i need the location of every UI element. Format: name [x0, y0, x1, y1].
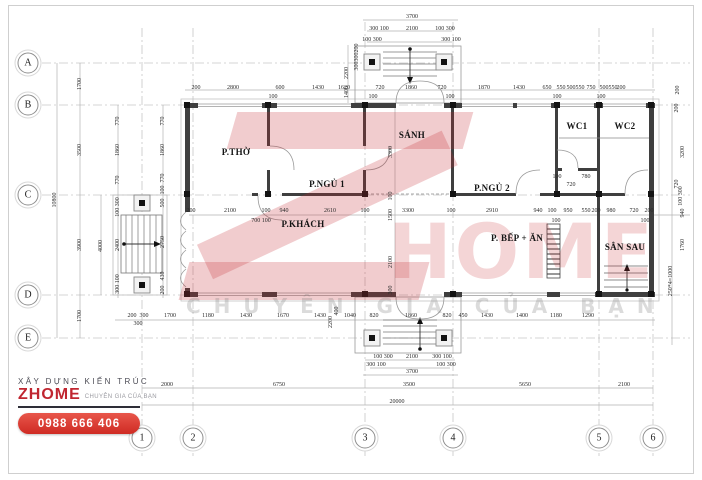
dim-label: 1180 — [202, 313, 214, 319]
room-label: SÁNH — [399, 130, 425, 140]
side-entrance-stair — [113, 195, 167, 295]
dim-label: 2200 — [328, 316, 334, 328]
room-label: WC1 — [567, 121, 588, 131]
dim-label: 100 — [641, 218, 650, 224]
dim-label: 200 — [354, 44, 360, 53]
dim-label: 100 — [262, 208, 271, 214]
dim-label: 950 — [564, 208, 573, 214]
room-label: P.NGỦ 1 — [309, 179, 345, 189]
dim-label: 200 — [192, 85, 201, 91]
dim-label: 1180 — [550, 313, 562, 319]
dim-label: 2400 — [115, 239, 121, 251]
dim-label: 300 100 — [115, 274, 121, 294]
dim-label: 200 — [617, 85, 626, 91]
dim-label: 1860 — [160, 144, 166, 156]
logo-slogan-top: XÂY DỰNG KIẾN TRÚC — [18, 377, 140, 386]
room-label: WC2 — [615, 121, 636, 131]
dim-label: 3700 — [406, 14, 418, 20]
dim-label: 2100 — [224, 208, 236, 214]
dim-label: 1400 — [516, 313, 528, 319]
dim-label: 100 — [369, 94, 378, 100]
backyard-steps — [604, 264, 648, 292]
grid-bubble-C: C — [18, 185, 39, 206]
dim-label: 100 — [361, 208, 370, 214]
grid-bubble-4: 4 — [443, 428, 464, 449]
dim-label: 770 — [115, 117, 121, 126]
room-label: P. BẾP + ĂN — [491, 233, 543, 243]
dim-label: 300 — [354, 62, 360, 71]
dim-label: 1430 — [312, 85, 324, 91]
internal-stair-hatch — [547, 224, 560, 278]
phone-button: 0988 666 406 — [18, 413, 140, 434]
floor-plan-page: HOME CHUYÊN GIA CỦA BẠN 1080017003500390… — [0, 0, 702, 480]
grid-bubble-6: 6 — [643, 428, 664, 449]
dim-label: 100 — [160, 186, 166, 195]
dim-label: 3300 — [388, 146, 394, 158]
grid-bubble-B: B — [18, 95, 39, 116]
grid-bubble-A: A — [18, 53, 39, 74]
dim-label: 2100 — [406, 354, 418, 360]
dim-label: 450 — [459, 313, 468, 319]
dim-label: 2800 — [227, 85, 239, 91]
dim-label: 1700 — [77, 310, 83, 322]
dim-label: 100 — [553, 94, 562, 100]
dim-label: 2910 — [486, 208, 498, 214]
dim-label: 720 — [376, 85, 385, 91]
dim-label: 650 — [543, 85, 552, 91]
dim-label: 720 — [438, 85, 447, 91]
dim-label: 770 — [160, 117, 166, 126]
grid-bubble-5: 5 — [589, 428, 610, 449]
dim-label: 550 — [557, 85, 566, 91]
dim-label: 1860 — [405, 85, 417, 91]
dim-label: 100 — [553, 174, 562, 180]
dim-label: 2200 — [344, 67, 350, 79]
dim-label: 100 — [388, 192, 394, 201]
dim-label: 5650 — [519, 382, 531, 388]
dim-label: 2610 — [324, 208, 336, 214]
dim-label: 750 — [587, 85, 596, 91]
grid-bubble-2: 2 — [183, 428, 204, 449]
dim-label: 200 — [675, 86, 681, 95]
dim-label: 3700 — [406, 369, 418, 375]
dim-label: 700 100 — [251, 218, 271, 224]
dim-label: 500 — [600, 85, 609, 91]
dim-label: 100 300 — [435, 26, 455, 32]
dim-label: 550 — [582, 208, 591, 214]
room-label: P.KHÁCH — [281, 219, 324, 229]
dim-label: 250*4=1000 — [668, 266, 674, 296]
dim-label: 300 — [140, 313, 149, 319]
dim-label: 300 100 — [441, 37, 461, 43]
dim-label: 1620 — [338, 85, 350, 91]
dim-label: 300 100 — [366, 362, 386, 368]
porch-bottom — [355, 297, 461, 353]
door-arcs — [181, 146, 649, 287]
dim-label: 20000 — [390, 399, 405, 405]
dim-label: 100 — [548, 208, 557, 214]
dim-label: 2000 — [161, 382, 173, 388]
dim-label: 100 — [446, 94, 455, 100]
dim-label: 300 — [354, 53, 360, 62]
dim-label: 200 — [674, 104, 680, 113]
room-label: P.THỜ — [222, 147, 250, 157]
dim-label: 940 — [680, 209, 686, 218]
dim-label: 2750 — [160, 236, 166, 248]
dim-label: 1670 — [277, 313, 289, 319]
dim-label: 200 — [128, 313, 137, 319]
logo-brand: ZHOME — [18, 387, 81, 403]
dim-label: 1430 — [240, 313, 252, 319]
dim-label: 100 — [597, 94, 606, 100]
dim-label: 400 — [334, 307, 340, 316]
dim-label: 1430 — [513, 85, 525, 91]
dim-label: 300 — [388, 286, 394, 295]
grid-bubble-D: D — [18, 285, 39, 306]
grid-bubble-E: E — [18, 328, 39, 349]
dim-label: 2100 — [388, 256, 394, 268]
dim-label: 100 300 — [373, 354, 393, 360]
dim-label: 100 300 — [436, 362, 456, 368]
dim-label: 200 — [187, 208, 196, 214]
dim-label: 200 — [160, 286, 166, 295]
dim-label: 1760 — [680, 239, 686, 251]
dim-label: 1040 — [344, 313, 356, 319]
dim-label: 1700 — [77, 78, 83, 90]
dim-label: 1860 — [405, 313, 417, 319]
dim-label: 780 — [582, 174, 591, 180]
dim-label: 550 — [576, 85, 585, 91]
dim-label: 820 — [443, 313, 452, 319]
dim-label: 200 — [592, 208, 601, 214]
grid-bubble-3: 3 — [355, 428, 376, 449]
room-label: SÂN SAU — [605, 242, 645, 252]
logo-divider — [18, 406, 140, 408]
dim-label: 3500 — [403, 382, 415, 388]
dim-label: 300 100 — [369, 26, 389, 32]
dim-label: 500 — [160, 199, 166, 208]
dim-label: 720 — [567, 182, 576, 188]
dim-label: 300 — [134, 321, 143, 327]
dim-label: 2100 — [618, 382, 630, 388]
dim-label: 200 — [645, 208, 654, 214]
dim-label: 600 — [276, 85, 285, 91]
dim-label: 980 — [607, 208, 616, 214]
dim-label: 2100 — [406, 26, 418, 32]
dim-label: 940 — [534, 208, 543, 214]
dim-label: 500 — [567, 85, 576, 91]
dim-label: 770 — [115, 176, 121, 185]
dim-label: 100 — [447, 208, 456, 214]
dim-label: 3200 — [680, 146, 686, 158]
dim-label: 940 — [280, 208, 289, 214]
dim-label: 100 300 — [362, 37, 382, 43]
phone-number: 0988 666 406 — [38, 418, 120, 430]
dim-label: 1290 — [582, 313, 594, 319]
dim-label: 300 100 — [432, 354, 452, 360]
dim-label: 3500 — [77, 144, 83, 156]
dim-label: 4000 — [98, 240, 104, 252]
dim-label: 770 — [160, 174, 166, 183]
brand-block: XÂY DỰNG KIẾN TRÚC ZHOME CHUYÊN GIA CỦA … — [18, 377, 140, 434]
dim-label: 100 — [552, 218, 561, 224]
dim-label: 100 300 — [678, 186, 684, 206]
dim-label: 1870 — [478, 85, 490, 91]
dim-label: 100 — [269, 94, 278, 100]
dim-label: 3900 — [77, 239, 83, 251]
dim-label: 820 — [370, 313, 379, 319]
dim-label: 720 — [630, 208, 639, 214]
room-label: P.NGỦ 2 — [474, 183, 510, 193]
logo-tagline: CHUYÊN GIA CỦA BẠN — [85, 394, 157, 403]
dim-label: 10800 — [52, 193, 58, 208]
dim-label: 1700 — [164, 313, 176, 319]
dim-label: 100 300 — [115, 197, 121, 217]
dim-label: 1860 — [115, 144, 121, 156]
dim-label: 430 — [160, 272, 166, 281]
dim-label: 1500 — [388, 209, 394, 221]
dim-label: 1430 — [481, 313, 493, 319]
dim-label: 1430 — [314, 313, 326, 319]
dim-label: 3300 — [402, 208, 414, 214]
dim-label: 6750 — [273, 382, 285, 388]
